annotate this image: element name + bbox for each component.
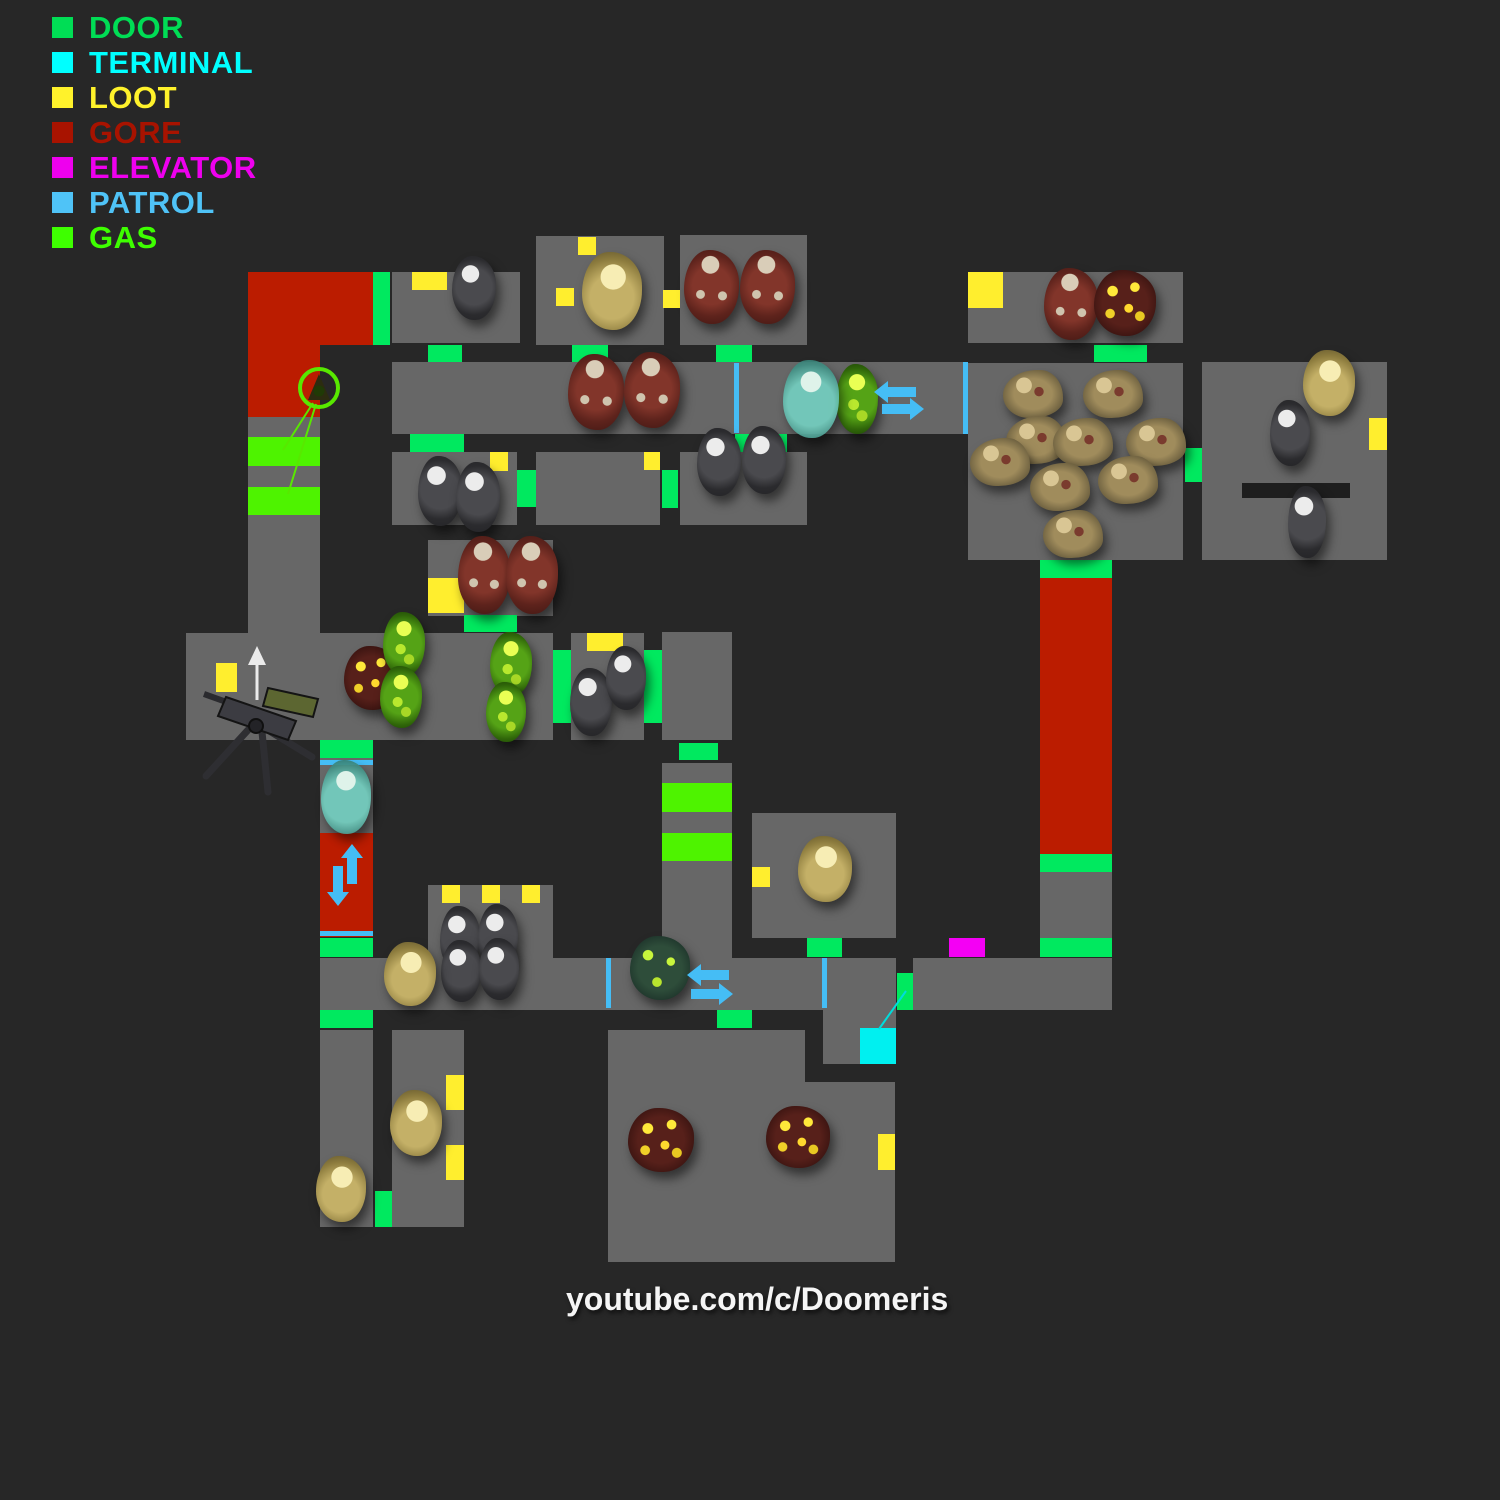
loot-marker <box>216 663 237 692</box>
zombie-gray <box>697 428 741 496</box>
door-marker <box>410 434 464 452</box>
zombie-boomer <box>628 1108 694 1172</box>
loot-marker <box>446 1075 464 1110</box>
door-marker <box>807 938 842 957</box>
loot-marker <box>968 272 1003 308</box>
door-marker <box>320 740 373 758</box>
zombie-heavy <box>740 250 795 324</box>
loot-marker <box>412 272 447 290</box>
map-guide-page: DOORTERMINALLOOTGOREELEVATORPATROLGAS yo… <box>0 0 1500 1500</box>
zombie-gray <box>1288 486 1326 558</box>
zombie-crawler <box>970 438 1030 486</box>
loot-marker <box>522 885 540 903</box>
zombie-gray <box>479 938 519 1000</box>
room-floor <box>913 958 1112 1010</box>
loot-marker <box>663 290 680 308</box>
zombie-fat <box>1303 350 1355 416</box>
door-marker <box>716 345 752 362</box>
zombie-heavy <box>506 536 558 614</box>
zombie-spectral <box>783 360 839 438</box>
door-marker <box>553 650 571 723</box>
gas-zone <box>662 833 732 861</box>
door-marker <box>717 1010 752 1028</box>
watermark: youtube.com/c/Doomeris <box>566 1281 898 1318</box>
zombie-gray <box>456 462 500 532</box>
gas-zone <box>248 437 320 466</box>
loot-marker <box>446 1145 464 1180</box>
zombie-crawler <box>1043 510 1103 558</box>
loot-marker <box>482 885 500 903</box>
zombie-gray <box>1270 400 1310 466</box>
loot-marker <box>752 867 770 887</box>
door-marker <box>662 470 678 508</box>
zombie-boomer <box>1094 270 1156 336</box>
loot-marker <box>644 452 660 470</box>
patrol-line <box>734 363 739 433</box>
elevator-marker <box>949 938 985 957</box>
zombie-gray <box>441 940 481 1002</box>
door-marker <box>1040 854 1112 872</box>
zombie-crawler <box>1053 418 1113 466</box>
gas-zone <box>248 487 320 515</box>
door-marker <box>517 470 536 507</box>
zombie-heavy <box>568 354 624 430</box>
gore-zone <box>248 272 373 345</box>
gas-soldier <box>486 682 526 742</box>
patrol-line <box>606 958 611 1008</box>
zombie-fat <box>384 942 436 1006</box>
gas-soldier <box>380 666 422 728</box>
door-marker <box>1040 938 1112 957</box>
zombie-crawler <box>1083 370 1143 418</box>
zombie-heavy <box>684 250 739 324</box>
door-marker <box>1040 560 1112 578</box>
patrol-line <box>963 362 968 434</box>
zombie-gray <box>452 256 496 320</box>
gore-zone <box>1040 578 1112 854</box>
zombie-toxic <box>630 936 690 1000</box>
door-marker <box>428 345 462 362</box>
zombie-fat <box>390 1090 442 1156</box>
room-floor <box>536 452 660 525</box>
loot-marker <box>1369 418 1387 450</box>
gas-zone <box>662 783 732 812</box>
zombie-gray <box>742 426 786 494</box>
gore-zone <box>248 345 320 417</box>
room-floor <box>805 1082 895 1262</box>
zombie-gray <box>606 646 646 710</box>
door-marker <box>464 615 517 632</box>
gore-zone <box>320 833 373 937</box>
door-marker <box>320 938 373 957</box>
door-marker <box>679 743 718 760</box>
door-marker <box>644 650 662 723</box>
loot-marker <box>556 288 574 306</box>
zombie-crawler <box>1030 463 1090 511</box>
door-marker <box>1094 345 1147 362</box>
room-floor <box>662 632 732 740</box>
zombie-heavy <box>458 536 510 614</box>
loot-marker <box>442 885 460 903</box>
zombie-crawler <box>1098 456 1158 504</box>
door-marker <box>320 1010 373 1028</box>
patrol-line <box>320 931 373 936</box>
zombie-crawler <box>1003 370 1063 418</box>
zombie-spectral <box>321 760 371 834</box>
gas-soldier <box>836 364 878 434</box>
room-floor <box>1040 872 1112 938</box>
zombie-fat <box>798 836 852 902</box>
door-marker <box>375 1191 392 1227</box>
door-marker <box>897 973 913 1010</box>
loot-marker <box>878 1134 895 1170</box>
door-marker <box>373 272 390 345</box>
loot-marker <box>578 237 596 255</box>
zombie-boomer <box>766 1106 830 1168</box>
zombie-heavy <box>1044 268 1098 340</box>
zombie-fat <box>582 252 642 330</box>
patrol-line <box>822 958 827 1008</box>
terminal-marker <box>860 1028 896 1064</box>
map-canvas <box>0 0 1500 1500</box>
zombie-fat <box>316 1156 366 1222</box>
door-marker <box>1185 448 1202 482</box>
zombie-heavy <box>624 352 680 428</box>
loot-marker <box>490 452 508 471</box>
